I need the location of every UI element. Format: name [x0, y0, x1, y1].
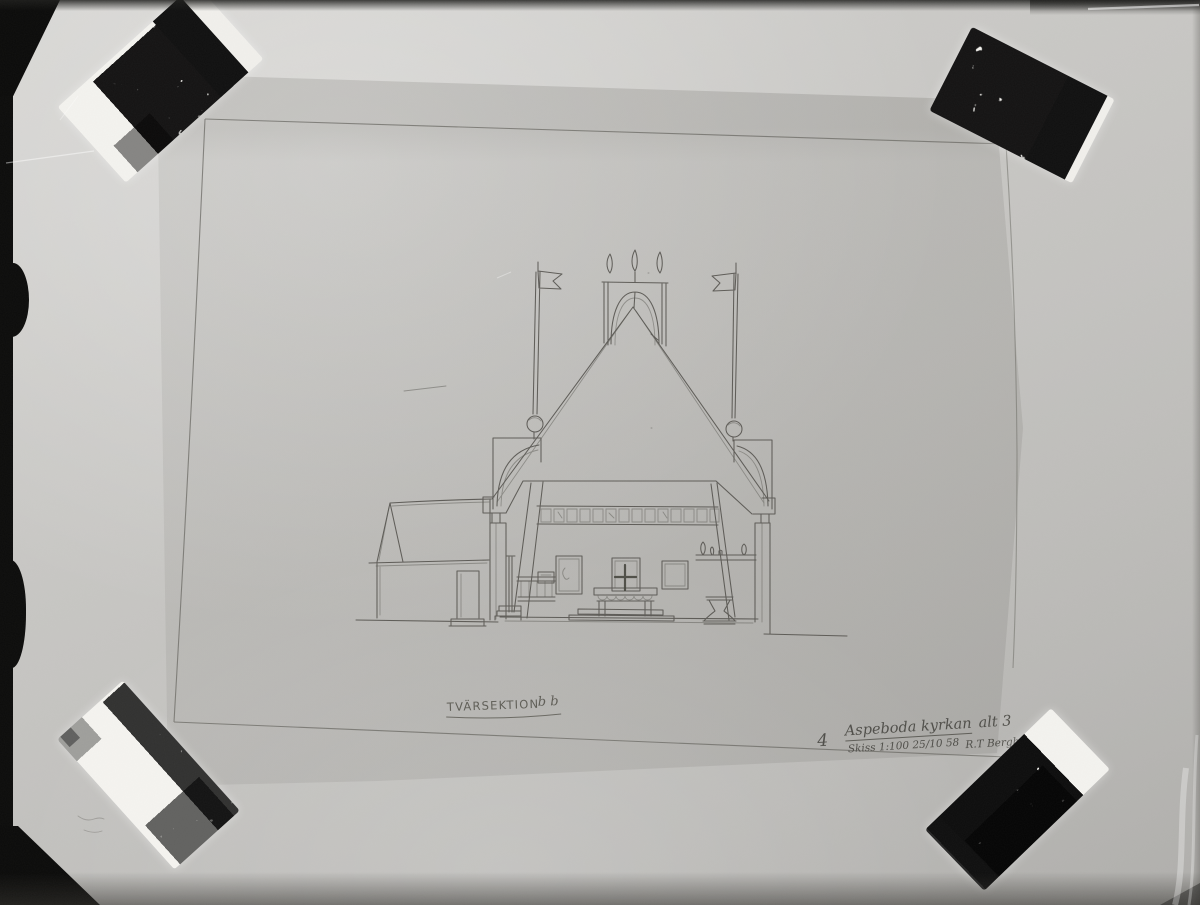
annotation-number: 4 [817, 731, 829, 752]
annotation-title-suffix: alt 3 [978, 713, 1012, 731]
photographed-architectural-drawing: TVÄRSEKTION b b 4 Aspeboda kyrkanalt 3 S… [0, 0, 1200, 905]
